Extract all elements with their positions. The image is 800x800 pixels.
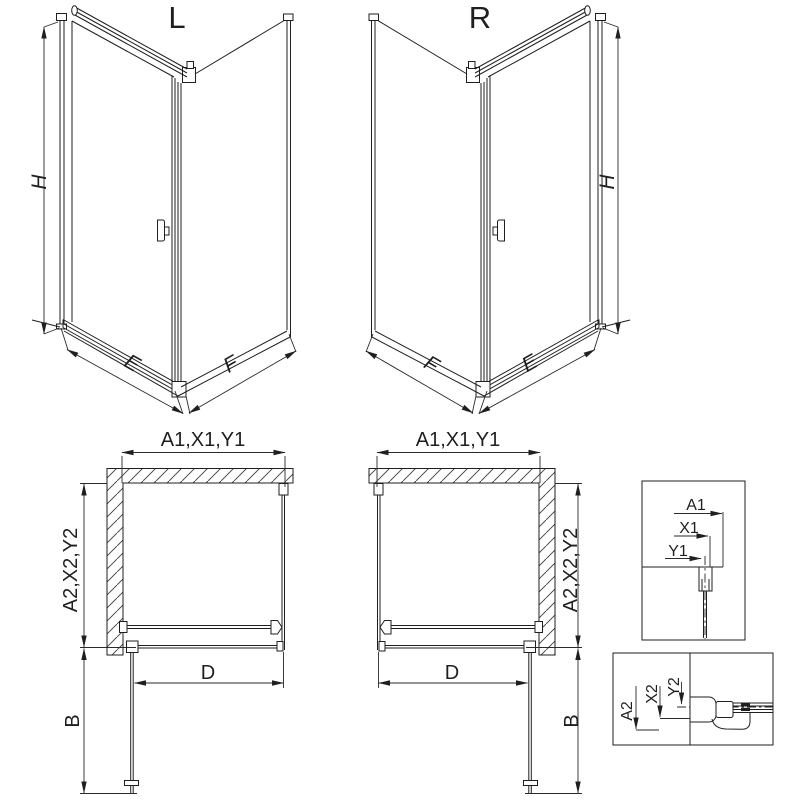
detail-a1-label: A1 xyxy=(686,497,706,514)
detail-x1-label: X1 xyxy=(679,520,699,537)
detail-x2-label: X2 xyxy=(644,684,661,704)
detail-bottom-main-profile xyxy=(690,697,716,722)
plan-left-top-dim-label: A1,X1,Y1 xyxy=(161,429,246,451)
iso-left-title: L xyxy=(168,0,185,35)
detail-y2-label: Y2 xyxy=(666,677,683,697)
iso-right-structure xyxy=(366,6,630,414)
plan-right-top-dim-label: A1,X1,Y1 xyxy=(416,429,501,451)
plan-left-side-dim-label: A2,X2,Y2 xyxy=(60,528,82,613)
plan-right-side-dim-label: A2,X2,Y2 xyxy=(560,528,582,613)
detail-y1-label: Y1 xyxy=(668,543,688,560)
detail-top-profile: A1 X1 Y1 xyxy=(642,481,745,640)
iso-right-height-label: H xyxy=(596,174,619,190)
plan-left-entry-dim-label: D xyxy=(201,662,215,684)
detail-a2-label: A2 xyxy=(619,701,636,721)
iso-right-side-label: F xyxy=(420,351,444,378)
detail-bottom-glass xyxy=(733,703,773,713)
detail-bottom-clamp-body xyxy=(716,702,733,718)
plan-right-entry-dim-label: D xyxy=(445,662,459,684)
shower-enclosure-dimension-diagram: L H E F R H E F A1,X1,Y1 A2,X2,Y2 D B A1… xyxy=(0,0,800,800)
plan-left-wall xyxy=(107,469,293,656)
plan-left-swing-dim-label: B xyxy=(62,714,84,727)
technical-drawing-page: L H E F R H E F A1,X1,Y1 A2,X2,Y2 D B A1… xyxy=(0,0,800,800)
iso-left-view: L H E F xyxy=(28,0,296,414)
iso-right-title: R xyxy=(469,0,491,35)
iso-right-view: R H E F xyxy=(366,0,630,414)
plan-left-view: A1,X1,Y1 A2,X2,Y2 D B xyxy=(60,429,293,794)
iso-left-structure xyxy=(32,6,296,414)
detail-top-channel-profile xyxy=(699,567,712,591)
plan-right-view: A1,X1,Y1 A2,X2,Y2 D B xyxy=(369,429,583,794)
plan-right-swing-dim-label: B xyxy=(561,714,583,727)
plan-right-wall xyxy=(369,469,555,656)
iso-left-height-label: H xyxy=(28,174,51,190)
detail-bottom-profile: A2 X2 Y2 xyxy=(613,653,773,745)
